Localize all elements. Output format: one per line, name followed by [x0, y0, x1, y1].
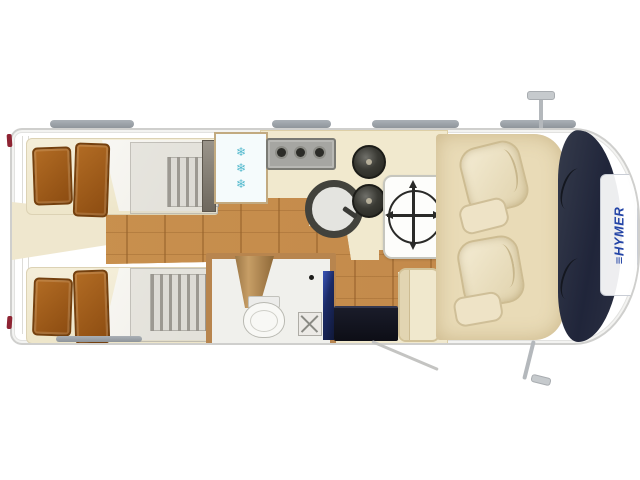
snowflake-icon: ❄ — [236, 178, 246, 190]
vehicle-body: ❄ ❄ ❄ — [10, 128, 640, 345]
arrow-down-icon — [409, 242, 417, 250]
snowflake-icon: ❄ — [236, 162, 246, 174]
wardrobe-hanging-clothes — [150, 274, 212, 331]
pillow — [73, 142, 111, 217]
arrow-up-icon — [409, 180, 417, 188]
arrow-left-icon — [385, 211, 393, 219]
motorhome-floorplan: ❄ ❄ ❄ — [0, 0, 640, 480]
mirror-arm-top — [539, 96, 543, 130]
roof-rail — [372, 120, 459, 128]
fridge: ❄ ❄ ❄ — [214, 132, 268, 204]
taillight-top — [7, 134, 13, 147]
stove — [266, 138, 336, 170]
roof-rail — [50, 120, 134, 128]
entry-step — [334, 306, 398, 341]
pillow — [32, 146, 73, 205]
stove-knob — [296, 148, 305, 157]
cab-sunroof-rail — [500, 120, 576, 128]
shower-drain — [298, 312, 322, 336]
hob-burner — [352, 145, 386, 179]
cabinet-blue — [323, 271, 334, 340]
bench-seat — [398, 268, 440, 342]
stove-knob — [315, 148, 324, 157]
logo-mark: ≡ — [612, 256, 627, 264]
logo-name: HYMER — [612, 206, 627, 255]
side-mirror-top — [527, 91, 555, 100]
door-lock-dot — [309, 275, 314, 280]
pillow — [32, 277, 73, 336]
toilet — [243, 302, 285, 338]
roof-rail — [272, 120, 331, 128]
seat-backrest — [452, 290, 504, 328]
taillight-bottom — [7, 316, 13, 329]
pillow — [73, 269, 111, 344]
hymer-logo-text: ≡HYMER — [612, 206, 627, 264]
side-mirror-bottom — [530, 374, 551, 387]
hymer-logo: ≡HYMER — [600, 174, 638, 296]
table-adjust-icon — [387, 214, 439, 217]
snowflake-icon: ❄ — [236, 146, 246, 158]
stove-knob — [277, 148, 286, 157]
awning-rail — [56, 336, 142, 342]
hob-burner — [352, 184, 386, 218]
